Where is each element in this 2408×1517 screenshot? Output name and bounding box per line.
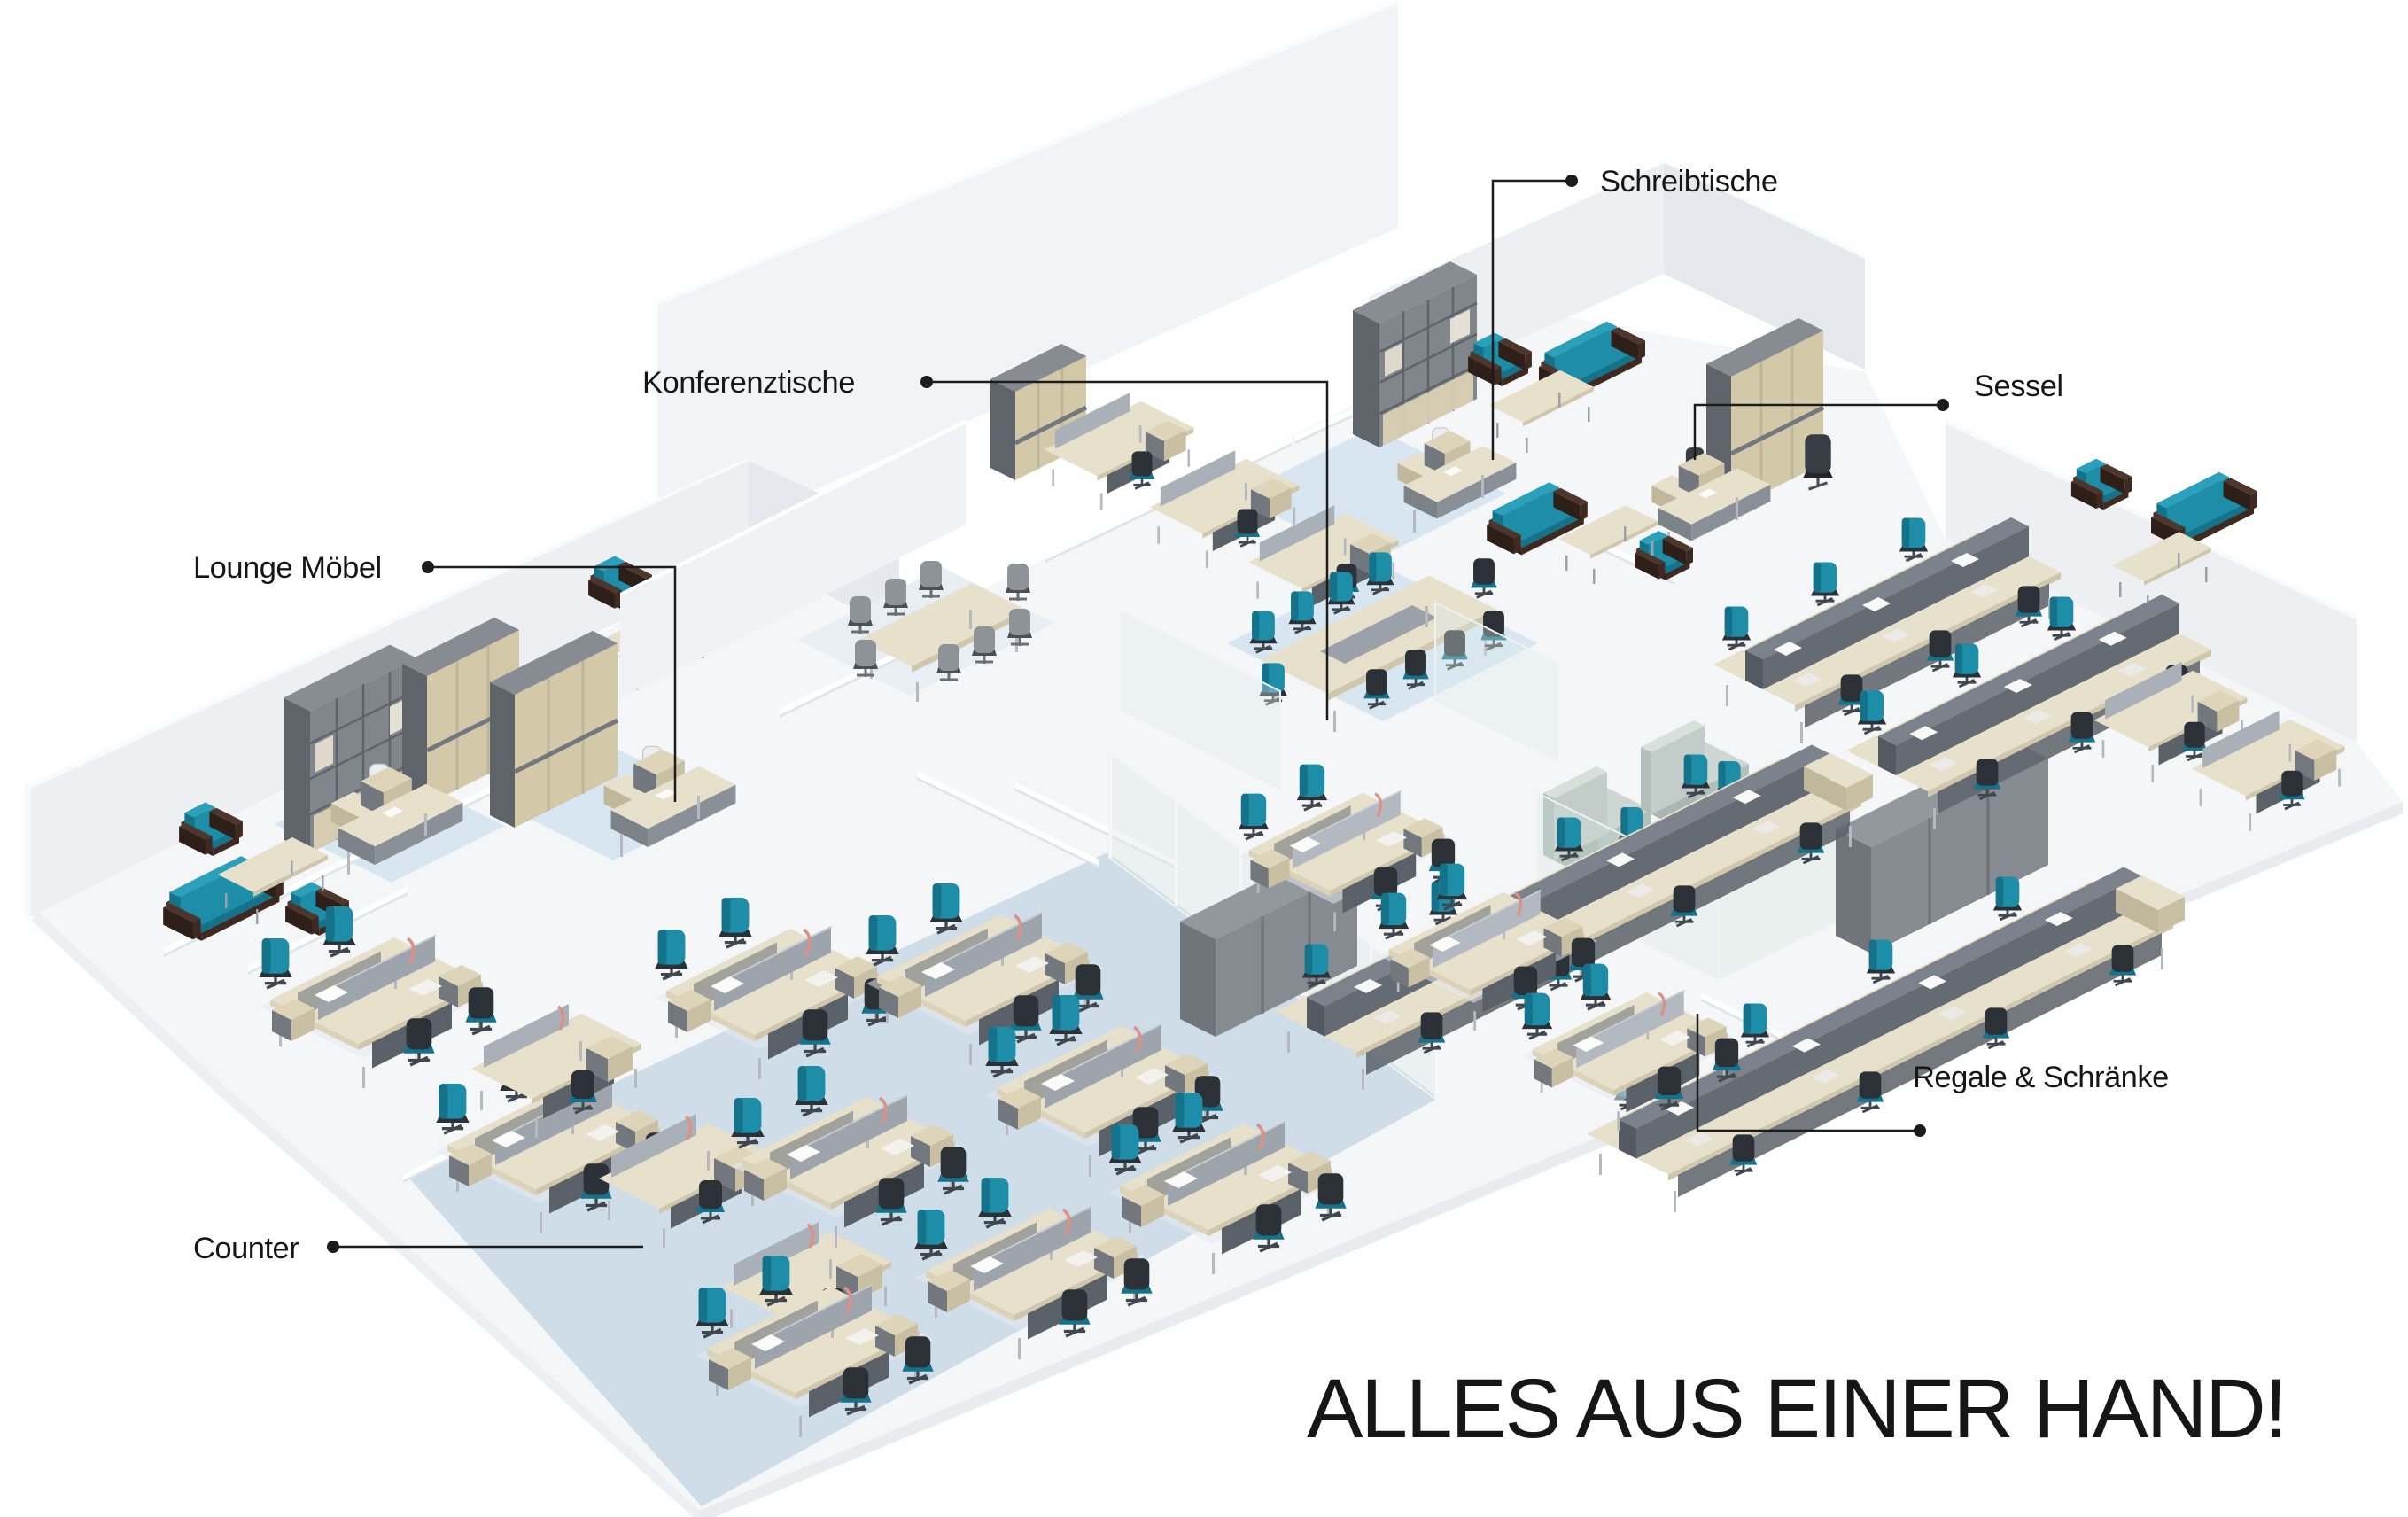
svg-text:Konferenztische: Konferenztische xyxy=(642,366,855,400)
svg-text:Regale & Schränke: Regale & Schränke xyxy=(1913,1061,2169,1094)
svg-text:ALLES AUS EINER HAND!: ALLES AUS EINER HAND! xyxy=(1307,1362,2286,1456)
svg-text:Schreibtische: Schreibtische xyxy=(1600,165,1778,198)
svg-text:Sessel: Sessel xyxy=(1974,370,2063,403)
svg-text:Counter: Counter xyxy=(193,1232,299,1265)
svg-text:Lounge Möbel: Lounge Möbel xyxy=(193,551,382,585)
